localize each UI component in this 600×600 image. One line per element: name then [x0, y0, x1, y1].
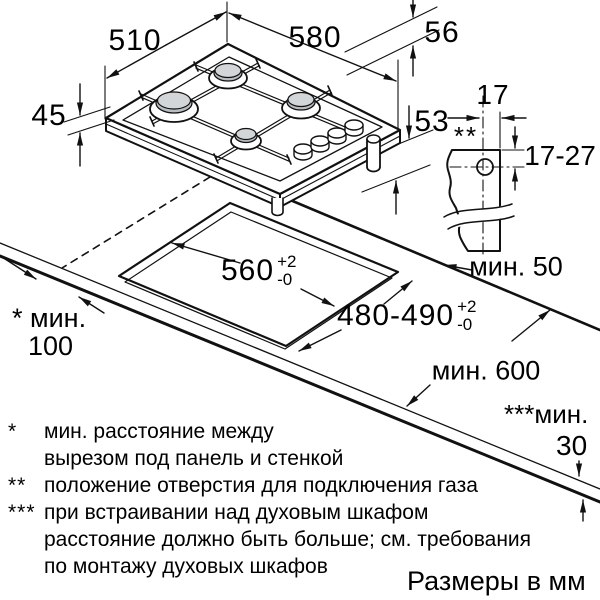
hob-foot — [272, 198, 283, 216]
footnote-text: при встраивании над духовым шкафом — [44, 501, 428, 524]
min-600-label: мин. 600 — [432, 358, 541, 385]
units-note: Размеры в мм — [407, 568, 586, 595]
footnote-line: расстояние должно быть больше; см. требо… — [8, 529, 531, 550]
tolerance-plus: +2 — [277, 253, 296, 271]
dim-510-label: 510 — [108, 26, 161, 56]
footnote-text: расстояние должно быть больше; см. требо… — [44, 528, 531, 551]
footnote-marker: * — [8, 421, 44, 442]
tolerance-minus: -0 — [277, 271, 296, 289]
footnote-line: по монтажу духовых шкафов — [8, 556, 328, 577]
dim-580-label: 580 — [288, 23, 341, 53]
footnote-text: по монтажу духовых шкафов — [44, 555, 328, 578]
footnote-line: *мин. расстояние между — [8, 421, 274, 442]
footnote-line: вырезом под панель и стенкой — [8, 448, 343, 469]
cutout-width-value: 560 — [221, 256, 274, 286]
cutout-depth-value: 480-490 — [337, 301, 454, 331]
dim-45-label: 45 — [31, 101, 66, 131]
tolerance-minus: -0 — [457, 316, 476, 334]
dim-17-label: 17 — [476, 81, 509, 109]
min-50-label: мин. 50 — [469, 254, 563, 281]
gas-hole-marker-label: ** — [454, 123, 478, 149]
footnote-marker: *** — [8, 502, 44, 523]
footnote-line: ***при встраивании над духовым шкафом — [8, 502, 428, 523]
footnote-text: положение отверстия для подключения газа — [44, 474, 478, 497]
footnote-marker: ** — [8, 475, 44, 496]
min-100-label: * мин. — [12, 305, 86, 332]
dim-56-label: 56 — [424, 18, 459, 48]
footnote-text: мин. расстояние между — [44, 420, 274, 443]
projection-dashed-line — [62, 177, 210, 268]
min-100-value: 100 — [28, 333, 73, 360]
installation-diagram-page: 510 580 56 53 45 17 17-27 ** мин. 50 мин… — [0, 0, 600, 600]
hob-isometric-view — [106, 44, 400, 216]
gas-pipe — [367, 139, 380, 172]
cutout-width-dim: 560 +2 -0 — [221, 256, 296, 289]
cutout-depth-tolerance: +2 -0 — [457, 298, 476, 334]
tolerance-plus: +2 — [457, 298, 476, 316]
dim-17-27-label: 17-27 — [524, 142, 596, 170]
min-30-label: ***мин. — [504, 401, 588, 427]
gas-connection-detail — [444, 96, 524, 255]
cutout-width-tolerance: +2 -0 — [277, 253, 296, 289]
footnote-text: вырезом под панель и стенкой — [44, 447, 343, 470]
footnote-line: **положение отверстия для подключения га… — [8, 475, 478, 496]
dim-53-label: 53 — [414, 107, 449, 137]
min-30-value: 30 — [556, 432, 587, 460]
cutout-depth-dim: 480-490 +2 -0 — [337, 301, 477, 334]
